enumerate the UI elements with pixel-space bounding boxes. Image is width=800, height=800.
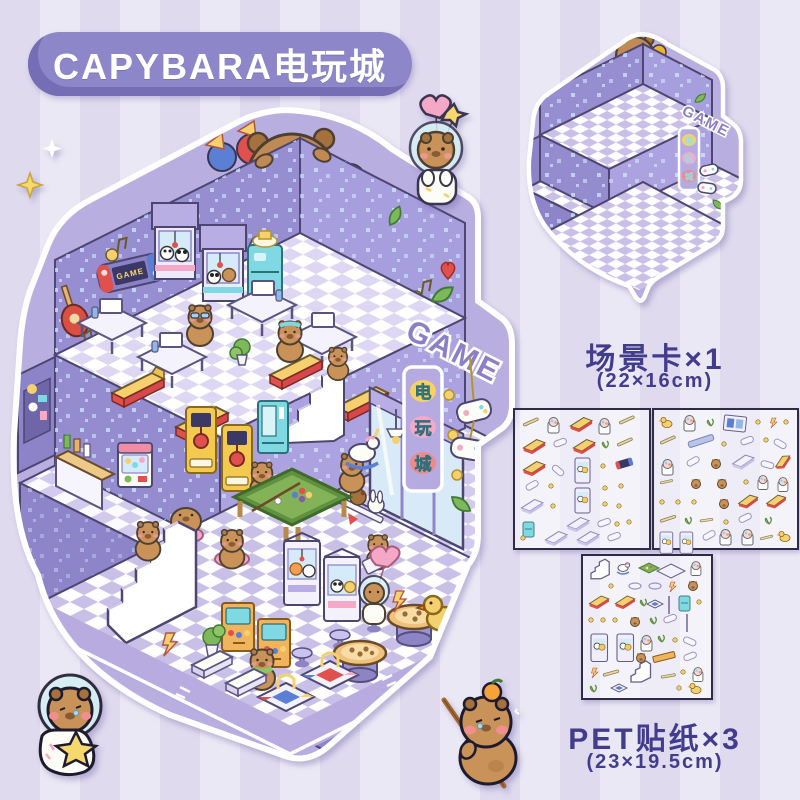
svg-text:城: 城: [684, 171, 693, 182]
vending-machine: [258, 401, 288, 453]
claw-machine-small: [284, 533, 320, 605]
page-title: CAPYBARA电玩城: [53, 38, 387, 90]
capybara-orange-cue: [432, 682, 542, 797]
capybara-on-stairs: [136, 522, 161, 561]
floating-astronaut-capybara: [396, 96, 480, 208]
gacha-machine: [118, 443, 152, 487]
claw-machine-small: [324, 549, 360, 621]
sticker-items: [521, 415, 635, 546]
claw-machine: [200, 225, 246, 301]
title-banner: CAPYBARA电玩城: [28, 32, 412, 96]
sparkle-star-icon: [18, 173, 42, 197]
claw-machine: [152, 203, 198, 279]
svg-text:玩: 玩: [684, 154, 693, 164]
sticker-items: [659, 415, 794, 553]
arcade-cabinet: [222, 603, 254, 651]
sticker-sheet-1: [513, 408, 651, 550]
capybara-with-glasses: [187, 305, 213, 346]
punch-arcade-machine: [186, 407, 216, 473]
scene-card-illustration: GAME 电 玩 城: [517, 30, 752, 310]
sparkle-icon: [43, 139, 62, 158]
sticker-sheet-2: [652, 408, 799, 550]
astronaut-capybara-star: [22, 666, 122, 786]
product-image: CAPYBARA电玩城: [0, 0, 800, 800]
punch-arcade-machine: [222, 425, 252, 491]
orange-fruit: [483, 683, 501, 701]
svg-text:城: 城: [415, 455, 432, 474]
capybara-with-headband: [277, 321, 303, 362]
sticker-items: [589, 559, 703, 693]
svg-text:玩: 玩: [415, 419, 432, 438]
sticker-sheets-size: (23×19.5cm): [512, 751, 798, 774]
sticker-sheet-3: [581, 554, 713, 700]
scene-card-size: (22×16cm): [512, 370, 798, 393]
svg-text:电: 电: [415, 382, 432, 402]
svg-text:电: 电: [684, 135, 693, 146]
